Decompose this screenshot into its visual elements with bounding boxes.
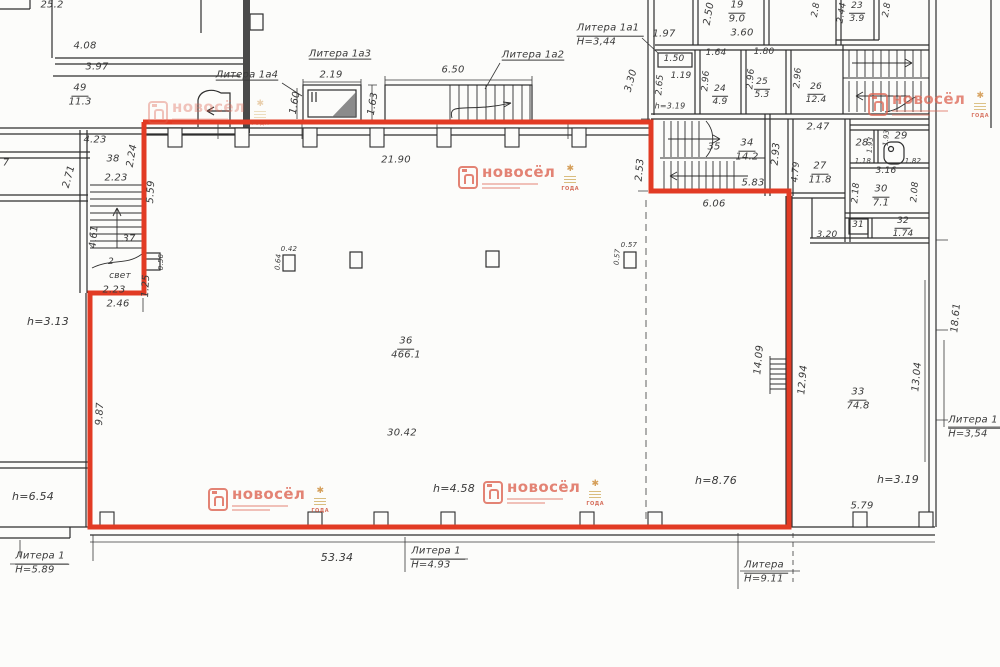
dimension-label: 1.19 [671,72,692,82]
novosel-watermark: новосёл ✱ ГОДА [483,480,604,507]
height-label: h=3.19 [877,474,919,486]
watermark-subtext-bars [232,505,305,513]
dimension-label: 2.46 [106,300,129,311]
badge-bars [589,489,601,500]
dimension-label: 2.53 [635,158,648,182]
dimension-label: 2.71 [62,164,78,189]
litera-label: Литера 1а3 [309,50,372,61]
watermark-award-badge: ✱ ГОДА [251,100,269,127]
dimension-label: 53.34 [321,552,354,564]
dimension-label: 2.47 [806,123,829,134]
dimension-label: 2.23 [104,174,127,185]
watermark-subtext-bars [172,118,245,126]
floorplan-page: 25.24.083.974911.34.232.717h=3.13h=6.54Л… [0,0,1000,667]
dimension-label: 7 [3,159,10,170]
height-label: h=3.19 [655,103,686,112]
litera-label: Литера 1Н=3,54 [948,416,1000,441]
watermark-award-badge: ✱ ГОДА [971,92,989,119]
dimension-label: свет [109,272,131,282]
dimension-label: 5.83 [741,179,764,190]
dimension-label: 1.18 [855,158,871,166]
litera-label: Литера 1а1Н=3,44 [577,24,644,49]
dimension-label: 3.60 [730,29,753,40]
badge-year-text: ГОДА [586,501,604,507]
dimension-label: 0.64 [275,254,284,271]
watermark-subtext-bars [507,498,580,506]
dimension-label: 1.93 [883,130,892,147]
height-label: h=6.54 [12,491,54,503]
height-label: h=3.13 [27,316,69,328]
dimension-label: 2.96 [793,67,804,89]
watermark-subtext-bars [482,183,555,191]
litera-label: ЛитераН=9.11 [744,561,788,586]
watermark-award-badge: ✱ ГОДА [311,487,329,514]
dimension-label: 1.64 [706,49,727,59]
brand-text: новосёл [232,487,305,502]
dimension-label: 21.90 [381,156,411,167]
room-area-label: 307.1 [872,185,889,210]
dimension-label: 30.42 [387,429,417,440]
room-area-label: 233.9 [849,2,865,24]
room-number: 37 [122,235,135,246]
room-area-label: 244.9 [712,85,728,107]
novosel-watermark: новосёл ✱ ГОДА [458,165,579,192]
badge-year-text: ГОДА [561,186,579,192]
dimension-label: 2.19 [319,71,342,82]
dimension-label: 2.08 [910,181,921,203]
room-number: 29 [894,132,907,143]
dimension-label: 1.50 [664,55,685,65]
brand-text: новосёл [507,480,580,495]
dimension-label: 6.06 [702,200,725,211]
dimension-label: 2.18 [851,182,862,204]
room-number: 38 [106,155,119,166]
dimension-label: 0.57 [621,242,637,250]
dimension-label: 4.79 [791,161,802,183]
novosel-house-icon [868,93,888,116]
room-area-label: 255.3 [754,78,770,100]
dimension-label: 2.50 [703,2,718,27]
badge-bars [564,174,576,185]
novosel-house-icon [148,101,168,124]
dimension-label: 12.94 [797,365,810,395]
litera-label: Литера 1Н=5.89 [15,552,69,577]
star-icon: ✱ [976,92,984,101]
watermark-subtext-bars [892,110,965,118]
room-number: 35 [707,143,720,154]
dimension-label: 18.61 [950,303,963,333]
dimension-label: 2.8 [882,2,894,18]
dimension-label: 4.08 [73,42,96,53]
novosel-house-icon [208,488,228,511]
dimension-label: 25.2 [40,1,63,12]
badge-year-text: ГОДА [251,121,269,127]
room-area-label: 199.0 [728,1,745,26]
litera-label: Литера 1а2 [502,51,565,62]
novosel-house-icon [483,481,503,504]
dimension-label: 1.93 [867,137,876,154]
badge-year-text: ГОДА [971,113,989,119]
dimension-label: 1.25 [141,274,153,298]
novosel-watermark: новосёл ✱ ГОДА [148,100,269,127]
dimension-label: 1.80 [754,48,775,58]
dimension-label: 3.20 [817,231,838,241]
room-area-label: 3374.8 [846,388,869,413]
dimension-label: 1.63 [367,92,382,117]
dimension-label: 1.82 [905,158,921,166]
star-icon: ✱ [256,100,264,109]
dimension-label: 5.59 [146,180,158,204]
height-label: h=4.58 [433,483,475,495]
dimension-label: 1.60 [289,91,304,116]
dimension-label: 5.79 [850,502,873,513]
dimension-label: 0.42 [281,246,297,254]
dimension-label: 13.04 [911,362,924,392]
height-label: h=8.76 [695,475,737,487]
dimension-label: 1.97 [652,30,675,41]
star-icon: ✱ [316,487,324,496]
badge-bars [974,101,986,112]
brand-text: новосёл [892,92,965,107]
dimension-label: 2.24 [126,144,141,169]
dimension-label: 4.23 [83,136,106,147]
dimension-label: 2.44 [836,2,849,24]
room-area-label: 2612.4 [806,83,827,105]
room-area-label: 2711.8 [808,162,831,187]
room-area-label: 36466.1 [391,337,421,362]
litera-label: Литера 1Н=4.93 [411,547,465,572]
dimension-label: 2.8 [811,2,823,18]
litera-label: Литера 1а4 [216,71,279,82]
novosel-watermark: новосёл ✱ ГОДА [868,92,989,119]
novosel-watermark: новосёл ✱ ГОДА [208,487,329,514]
dimension-label: 2.23 [102,286,125,297]
dimension-label: 14.09 [753,345,766,375]
dimension-label: 6.50 [441,66,464,77]
dimension-label: 4.61 [89,225,102,249]
dimension-label: 0.57 [614,249,623,266]
badge-bars [314,496,326,507]
dimension-label: 2 [108,258,114,268]
dimension-label: 0.56 [158,254,166,270]
dimension-label: 3.16 [876,167,897,177]
dimension-label: 3.30 [624,68,640,93]
dimension-label: 2.93 [771,142,784,166]
badge-bars [254,109,266,120]
badge-year-text: ГОДА [311,508,329,514]
novosel-house-icon [458,166,478,189]
dimension-label: 3.97 [85,63,108,74]
star-icon: ✱ [566,165,574,174]
brand-text: новосёл [172,100,245,115]
room-area-label: 321.74 [893,217,914,239]
star-icon: ✱ [591,480,599,489]
dimension-label: 2.65 [655,74,666,96]
room-area-label: 3414.2 [735,139,758,164]
room-number: 31 [852,221,864,231]
room-area-label: 4911.3 [68,84,91,109]
brand-text: новосёл [482,165,555,180]
watermark-award-badge: ✱ ГОДА [561,165,579,192]
dimension-label: 2.96 [701,70,712,92]
dimension-label: 9.87 [95,402,107,426]
watermark-award-badge: ✱ ГОДА [586,480,604,507]
